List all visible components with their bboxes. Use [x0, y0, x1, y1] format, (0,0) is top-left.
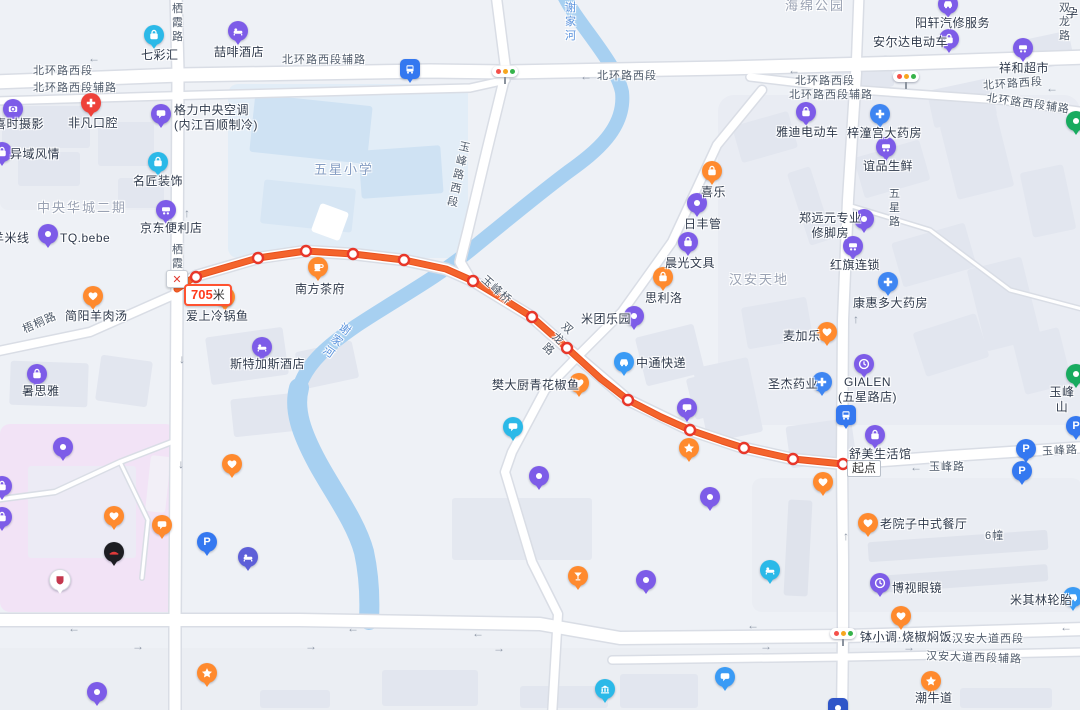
route-waypoint — [838, 459, 848, 469]
road-casing — [177, 251, 843, 464]
route-waypoint — [348, 249, 358, 259]
route-waypoint — [623, 395, 633, 405]
route-waypoint — [685, 425, 695, 435]
route-waypoint — [562, 343, 572, 353]
map-canvas[interactable]: PPPP 七彩汇喆啡酒店阳轩汽修服务安尔达电动车祥和超市雅迪电动车梓潼宫大药房谊… — [0, 0, 1080, 710]
road — [0, 440, 177, 500]
route-waypoint — [253, 253, 263, 263]
road — [175, 0, 178, 710]
road — [0, 293, 178, 352]
route-waypoint — [527, 312, 537, 322]
map-svg — [0, 0, 1080, 710]
road — [0, 620, 1080, 638]
route-waypoint — [191, 272, 201, 282]
road — [120, 462, 148, 578]
route-waypoint — [468, 276, 478, 286]
route-waypoint — [788, 454, 798, 464]
river — [297, 388, 369, 620]
road — [750, 77, 1080, 112]
route-line-casing — [177, 251, 843, 464]
route-waypoint — [399, 255, 409, 265]
road — [496, 0, 506, 72]
route-waypoint — [739, 443, 749, 453]
road — [177, 251, 843, 464]
road-casing — [848, 205, 1080, 310]
road — [460, 72, 506, 282]
route-waypoint — [301, 246, 311, 256]
route-line — [177, 251, 843, 464]
road — [856, 0, 859, 73]
